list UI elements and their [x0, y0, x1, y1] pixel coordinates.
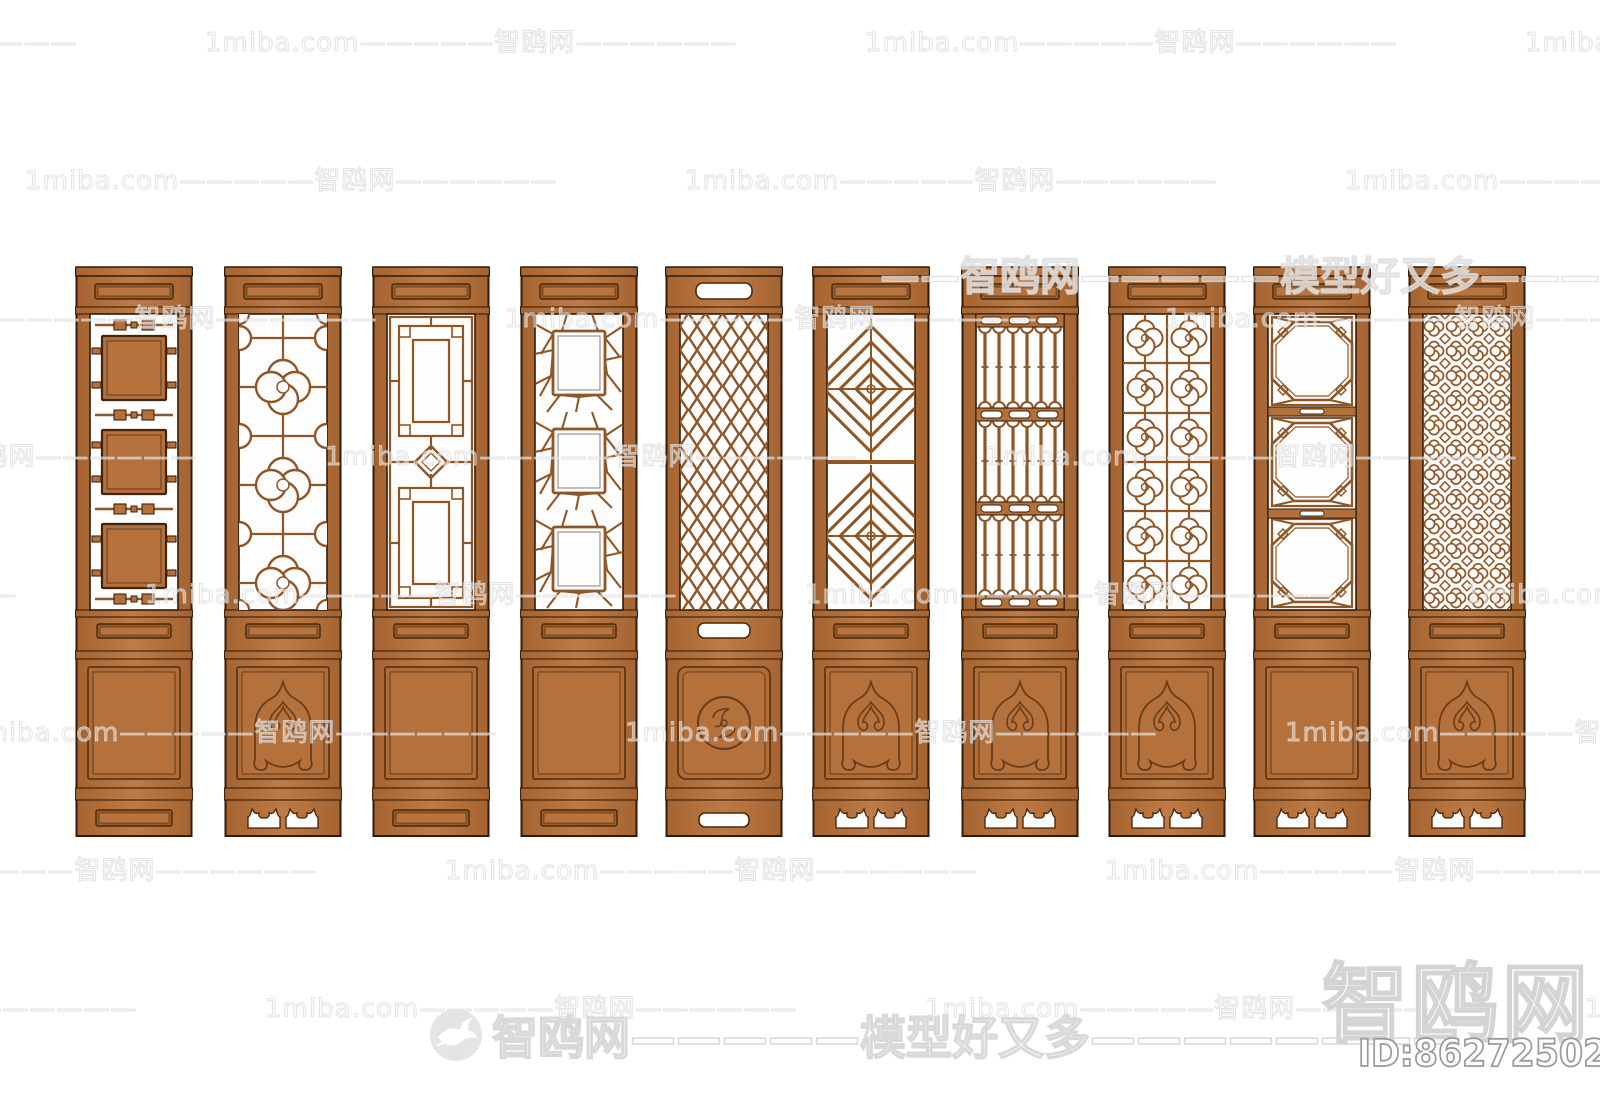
door-panel-10-graphic [1408, 266, 1526, 838]
watermark-footer: 智鸥网—————模型好又多———————— [430, 1002, 1458, 1068]
door-panel-4-graphic [520, 266, 638, 838]
door-panel-3-graphic [372, 266, 490, 838]
door-panel-9 [1253, 266, 1371, 838]
door-panel-1-graphic [75, 266, 193, 838]
watermark-footer-text: 智鸥网—————模型好又多———————— [492, 1002, 1458, 1068]
watermark-id: ID:862725029 [1358, 1032, 1600, 1075]
door-panel-3 [372, 266, 490, 838]
door-panel-7-graphic [961, 266, 1079, 838]
door-panel-6 [812, 266, 930, 838]
door-panel-2-graphic [224, 266, 342, 838]
door-panel-6-graphic [812, 266, 930, 838]
door-panel-9-graphic [1253, 266, 1371, 838]
product-image: 1miba.com—————智鸥网——————1miba.com—————智鸥网… [0, 0, 1600, 1109]
door-panel-4 [520, 266, 638, 838]
door-panel-10 [1408, 266, 1526, 838]
door-panel-7 [961, 266, 1079, 838]
door-panel-5 [665, 266, 783, 838]
door-panel-8-graphic [1108, 266, 1226, 838]
door-panel-5-graphic [665, 266, 783, 838]
watermark-fragment: ——智鸥网—————模型好又多———— [880, 244, 1600, 302]
door-panel-8 [1108, 266, 1226, 838]
door-panel-2 [224, 266, 342, 838]
seagull-logo-icon [430, 1009, 482, 1061]
door-panel-1 [75, 266, 193, 838]
